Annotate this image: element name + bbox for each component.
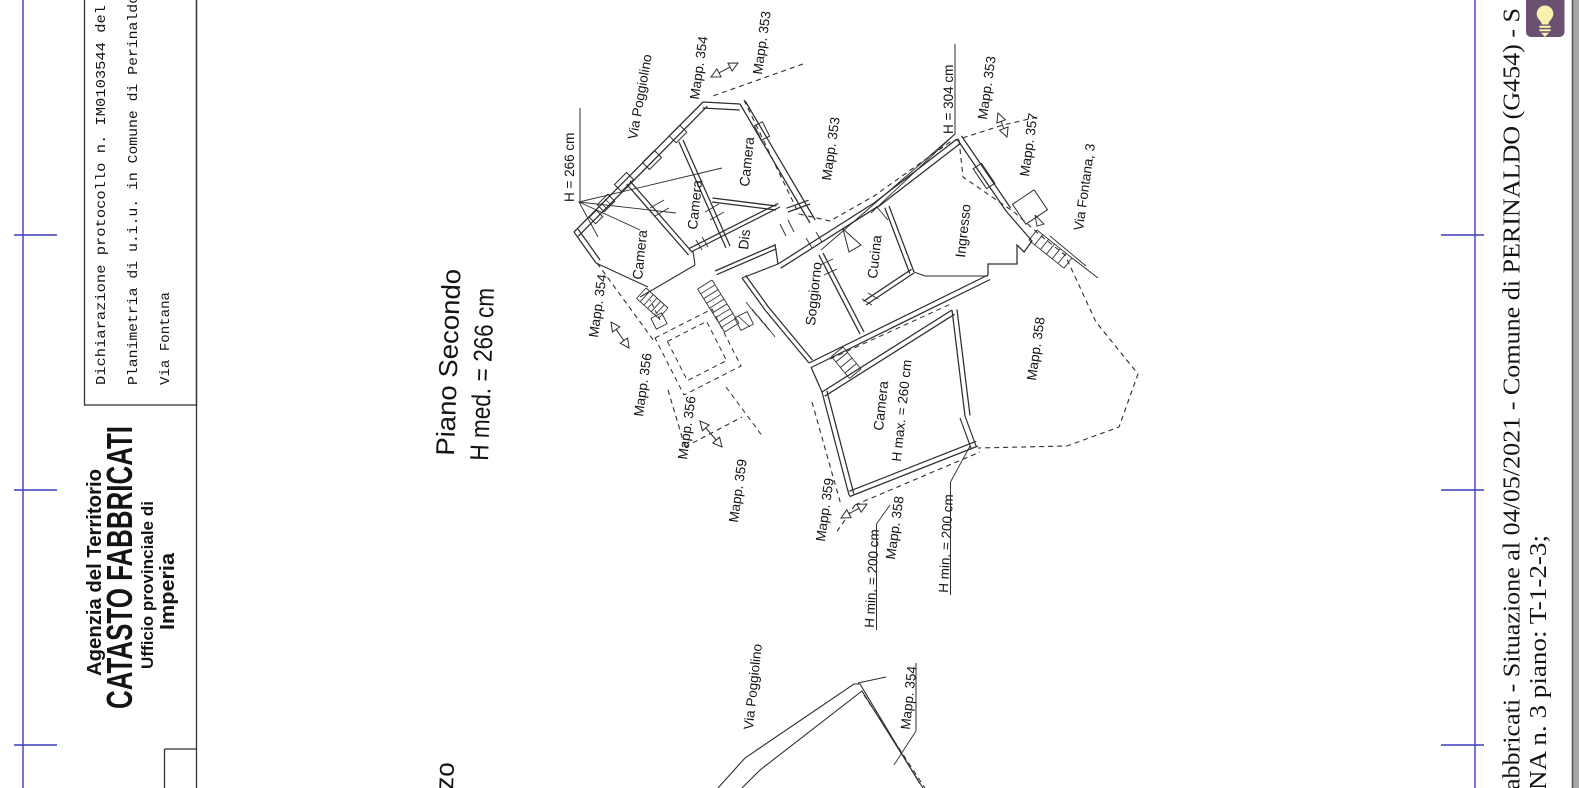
- svg-text:Via Fontana: Via Fontana: [159, 292, 174, 385]
- svg-text:H = 266 cm: H = 266 cm: [562, 133, 577, 202]
- svg-text:Imperia: Imperia: [157, 552, 179, 630]
- svg-text:NA n. 3 piano: T-1-2-3;: NA n. 3 piano: T-1-2-3;: [1526, 535, 1552, 788]
- svg-text:Planimetria di u.i.u. in Comun: Planimetria di u.i.u. in Comune di Perin…: [127, 0, 142, 385]
- svg-text:H = 304 cm: H = 304 cm: [941, 65, 956, 134]
- svg-text:abbricati - Situazione al 04/0: abbricati - Situazione al 04/05/2021 - C…: [1500, 8, 1526, 788]
- svg-text:Dichiarazione protocollo n.: Dichiarazione protocollo n. IM0103544 de…: [95, 5, 110, 385]
- svg-text:Ufficio provinciale di: Ufficio provinciale di: [138, 501, 157, 669]
- svg-text:H med. = 266 cm: H med. = 266 cm: [464, 287, 500, 461]
- svg-text:zo: zo: [429, 762, 460, 788]
- svg-text:CATASTO FABBRICATI: CATASTO FABBRICATI: [99, 426, 140, 709]
- svg-text:Dis: Dis: [735, 229, 753, 251]
